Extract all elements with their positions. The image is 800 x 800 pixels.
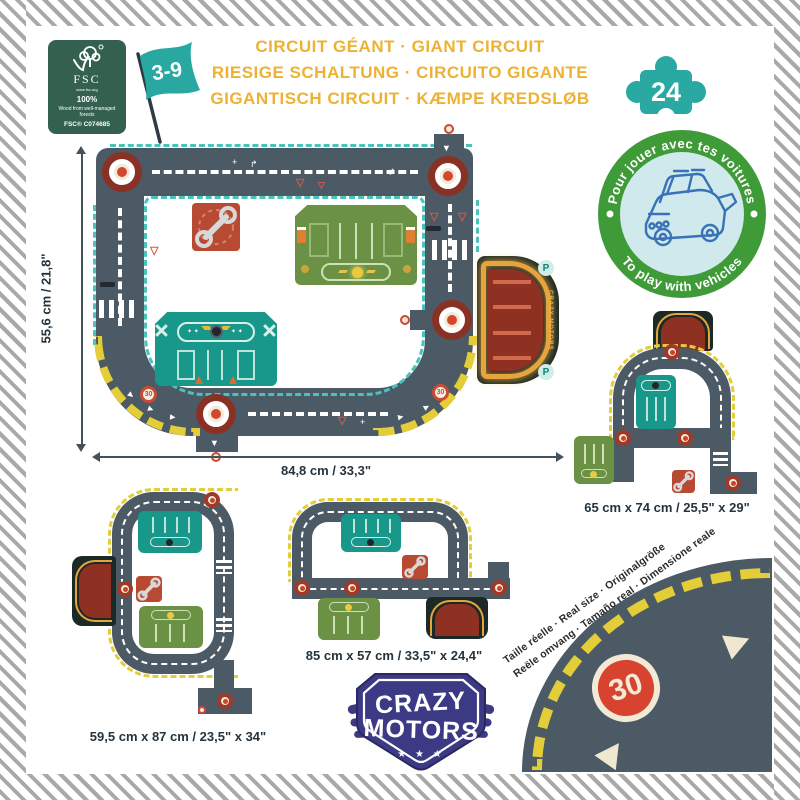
alt-parking-tile: [72, 556, 116, 626]
bay-line: [164, 517, 166, 533]
tire-icon: [652, 382, 659, 389]
alt-wrench-tile: [402, 555, 428, 579]
bay-line: [207, 350, 209, 380]
alt-road-stub: [488, 562, 509, 582]
crosswalk: [216, 560, 232, 574]
mini-roundabout: [217, 693, 233, 709]
bay-line: [176, 517, 178, 533]
dimension-line-horizontal: [98, 456, 556, 458]
speed-limit-badge: 30: [432, 384, 449, 401]
parking-brand-text: CRAZY MOTORS: [547, 290, 553, 350]
bay-line: [333, 616, 335, 634]
alt-wrench-tile: [136, 576, 162, 602]
roundabout-sign: [400, 315, 410, 325]
roundabout-top-left: [102, 152, 142, 192]
centerline-top: [152, 170, 418, 174]
bay-line: [584, 444, 586, 464]
road-stub-mid: [410, 310, 428, 330]
tire-icon: [166, 539, 173, 546]
box-back-panel: FSC www.fsc.org 100% Wood from well-mana…: [0, 0, 800, 800]
fsc-license-code: FSC® C074685: [64, 121, 110, 128]
mini-roundabout: [725, 475, 741, 491]
turn-arrow: ↱: [388, 168, 396, 177]
alt-right-size-label: 65 cm x 74 cm / 25,5" x 29": [567, 500, 767, 515]
bay-line: [339, 223, 341, 259]
bay-line: [183, 624, 185, 642]
yield-sign-icon: ▽: [150, 246, 158, 257]
road-mark: +: [232, 158, 237, 167]
medal-icon: [301, 265, 309, 273]
mini-roundabout: [491, 580, 507, 596]
traffic-light-icon: [426, 226, 441, 231]
sun-logo-icon: [590, 471, 597, 478]
teal-edge-top: [110, 144, 472, 147]
garage-logo-pill: ✦ ✦ ✦ ✦: [177, 322, 255, 342]
bay-line: [593, 444, 595, 464]
bay-line: [646, 397, 648, 421]
parking-tile: CRAZY MOTORS P P: [477, 256, 559, 384]
charging-station-tile: [295, 205, 417, 285]
roundabout-sign: [444, 124, 454, 134]
play-with-vehicles-badge: Pour jouer avec tes voitures To play wit…: [596, 128, 768, 300]
bay-line: [188, 517, 190, 533]
mini-roundabout: [344, 580, 360, 596]
bay-line: [221, 350, 223, 380]
bay-line: [169, 624, 171, 642]
garage-tile: ✦ ✦ ✦ ✦: [155, 312, 277, 386]
mini-roundabout: [117, 581, 133, 597]
medal-icon: [403, 265, 411, 273]
sun-logo-icon: [345, 604, 352, 611]
turn-arrow: ↱: [250, 160, 258, 169]
bay-line: [602, 444, 604, 464]
alt-garage: [138, 511, 202, 553]
bay-line: [371, 223, 373, 259]
crosswalk-left-road: [99, 300, 139, 318]
parking-lot: [435, 604, 479, 636]
main-width-label: 84,8 cm / 33,3": [226, 463, 426, 478]
teal-edge-left: [93, 205, 96, 345]
charger-post: [406, 227, 415, 243]
garage-bay: [177, 350, 195, 380]
frame-border-left: [0, 0, 26, 800]
road-arrow: ▸: [440, 146, 451, 152]
road-arrow: ▸: [169, 412, 176, 424]
bay-line: [347, 616, 349, 634]
parking-letter-badge: P: [538, 260, 554, 276]
star-marks: ✦ ✦: [231, 328, 243, 335]
yield-sign-icon: ▽: [318, 180, 325, 191]
roundabout-mid-right: [432, 300, 472, 340]
frame-border-right: [774, 0, 800, 800]
arrowhead-up: [76, 146, 86, 154]
piece-count-text: 24: [651, 77, 681, 107]
bay-line: [155, 624, 157, 642]
alt-garage: [341, 514, 401, 552]
logo-stars: ★ ★ ★: [397, 749, 444, 760]
centerline-bottom: [248, 412, 388, 416]
bolt-icon: [366, 270, 376, 273]
tire-icon: [367, 539, 374, 546]
traffic-cone-icon: [229, 376, 237, 384]
roundabout-top-right: [428, 156, 468, 196]
mini-roundabout: [204, 492, 220, 508]
alt-charging-station: [574, 436, 614, 484]
bay-line: [389, 519, 391, 533]
crazy-motors-logo: CRAZY MOTORS ★ ★ ★: [345, 664, 497, 778]
frame-border-top: [0, 0, 800, 26]
main-height-label: 55,6 cm / 21,8": [39, 214, 54, 384]
hazard-curve-bottom-right: [373, 336, 477, 436]
crosswalk-right-road: [432, 240, 472, 260]
logo-line-2: MOTORS: [363, 714, 479, 746]
road-arrow: ▸: [208, 441, 219, 447]
roundabout-sign: [198, 706, 206, 714]
parking-letter-badge: P: [538, 364, 554, 380]
arrowhead-right: [556, 452, 564, 462]
mini-roundabout: [294, 580, 310, 596]
wrench-icon: [192, 203, 240, 251]
arrowhead-down: [76, 444, 86, 452]
traffic-cone-icon: [195, 376, 203, 384]
tire-icon: [210, 325, 223, 338]
parking-line: [493, 280, 531, 284]
alt-garage: [636, 375, 676, 429]
mini-roundabout: [664, 344, 680, 360]
alt-charging-station: [318, 598, 380, 640]
crosswalk: [713, 452, 728, 466]
parking-line: [493, 305, 531, 309]
arrowhead-left: [92, 452, 100, 462]
bay-line: [152, 517, 154, 533]
bay-line: [655, 397, 657, 421]
roundabout-bottom: [196, 394, 236, 434]
charging-bay: [309, 223, 329, 257]
road-mark: +: [360, 418, 365, 427]
charger-post: [297, 227, 306, 243]
parking-lot: [79, 564, 111, 618]
parking-line: [493, 331, 531, 335]
sun-logo-icon: [167, 612, 174, 619]
piece-count-puzzle-icon: 24: [618, 48, 714, 136]
alt-parking-tile: [426, 597, 488, 639]
parking-lot: [487, 269, 543, 371]
teal-edge-right: [476, 200, 479, 252]
garage-bay: [237, 350, 255, 380]
alt-bottom-left-size-label: 59,5 cm x 87 cm / 23,5" x 34": [78, 729, 278, 744]
alt-charging-station: [139, 606, 203, 648]
mini-roundabout: [615, 430, 631, 446]
sun-logo-icon: [352, 267, 363, 278]
crosswalk: [216, 618, 232, 632]
alt-wrench-tile: [672, 470, 695, 493]
bay-line: [365, 519, 367, 533]
traffic-light-icon: [100, 282, 115, 287]
bay-line: [361, 616, 363, 634]
yield-sign-icon: ▽: [458, 212, 466, 223]
bolt-icon: [338, 270, 348, 273]
yield-sign-icon: ▽: [338, 416, 346, 427]
bay-line: [353, 519, 355, 533]
alt-centerline-bottom: [300, 588, 500, 590]
bay-line: [377, 519, 379, 533]
bay-line: [355, 223, 357, 259]
speed-limit-badge: 30: [140, 386, 157, 403]
alt-bottom-middle-size-label: 85 cm x 57 cm / 33,5" x 24,4": [294, 648, 494, 663]
dimension-line-vertical: [81, 152, 83, 444]
star-marks: ✦ ✦: [187, 328, 199, 335]
wrench-tile: [192, 203, 240, 251]
yield-sign-icon: ▽: [430, 212, 438, 223]
station-logo-pill: [321, 263, 391, 281]
parking-line: [493, 356, 531, 360]
mini-roundabout: [677, 430, 693, 446]
yield-sign-icon: ▽: [296, 178, 304, 189]
bay-line: [664, 397, 666, 421]
charging-bay: [383, 223, 403, 257]
